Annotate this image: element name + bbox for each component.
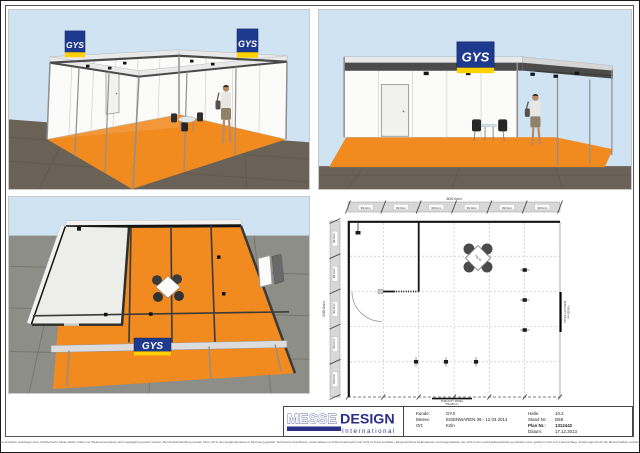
field-ort: Ort:Köln xyxy=(416,423,524,429)
svg-text:99.0cm: 99.0cm xyxy=(502,206,513,210)
svg-text:99.0cm: 99.0cm xyxy=(431,206,442,210)
fields-right: Halle:10.2 Stand Nr.:D68 Plan Nr.:131244… xyxy=(528,407,577,436)
messedesign-logo-graphic: MESSE DESIGN International xyxy=(284,407,403,437)
panel-top-view: GYS xyxy=(8,196,310,394)
gys-sign: GYS xyxy=(134,338,171,355)
svg-text:GYS: GYS xyxy=(66,40,84,50)
svg-text:99.0cm: 99.0cm xyxy=(396,206,407,210)
top-dimension-strip: 99.0cm 99.0cm 99.0cm 99.0cm 99.0cm 99.0c… xyxy=(346,201,563,214)
top-view-render: GYS xyxy=(9,197,309,393)
messedesign-logo: MESSE DESIGN International xyxy=(283,406,404,437)
title-block-fields: Kunde:GYS Messe:EISENWAREN 09.- 12.03.20… xyxy=(404,406,633,437)
booth-floor xyxy=(329,137,613,167)
svg-text:MESSE: MESSE xyxy=(287,412,337,428)
panel-front-view: GYS xyxy=(318,9,632,190)
svg-text:99.0cm: 99.0cm xyxy=(332,268,336,279)
svg-text:GYS: GYS xyxy=(238,39,257,49)
storage-spotlight xyxy=(356,223,361,235)
svg-text:99.0cm: 99.0cm xyxy=(332,233,336,244)
left-dimension-strip: 99.0cm 99.0cm 99.0cm 99.0cm 99.0cm xyxy=(330,219,341,400)
svg-text:International: International xyxy=(342,428,396,435)
front-view-render: GYS xyxy=(319,10,631,189)
svg-text:99.0cm: 99.0cm xyxy=(332,373,336,384)
gys-sign: GYS xyxy=(65,31,85,57)
svg-text:GYS: GYS xyxy=(462,50,490,65)
svg-text:H50/150 cm: H50/150 cm xyxy=(566,306,569,319)
gys-sign: GYS xyxy=(457,42,494,73)
footer: Unsere Entwürfe unterliegen dem Urheberr… xyxy=(0,440,640,444)
panel-perspective-view: GYS GYS xyxy=(8,9,310,190)
svg-text:GYS: GYS xyxy=(142,341,163,352)
publicity-panel-bottom: PUBLICITY PANEL H50/150 cm xyxy=(432,399,472,406)
floor-plan-drawing: 600.0cm 99.0cm 99.0cm 99.0cm 99.0cm 99.0… xyxy=(320,194,630,406)
field-datum: Datum:17.12.2013 xyxy=(528,429,577,435)
back-wall xyxy=(344,71,517,138)
gys-sign: GYS xyxy=(237,29,258,58)
panel-floor-plan: 600.0cm 99.0cm 99.0cm 99.0cm 99.0cm 99.0… xyxy=(320,194,630,406)
svg-text:99.0cm: 99.0cm xyxy=(332,303,336,314)
door-swing xyxy=(352,289,383,321)
storage-room xyxy=(352,222,419,322)
svg-text:99.0cm: 99.0cm xyxy=(467,206,478,210)
door xyxy=(381,85,408,137)
table-and-chairs xyxy=(152,274,184,302)
svg-text:99.0cm: 99.0cm xyxy=(332,338,336,349)
perspective-view-render: GYS GYS xyxy=(9,10,309,189)
total-width-dimension: 600.0cm xyxy=(446,196,462,201)
fields-left: Kunde:GYS Messe:EISENWAREN 09.- 12.03.20… xyxy=(416,407,524,436)
svg-text:99.0cm: 99.0cm xyxy=(537,206,548,210)
svg-text:DESIGN: DESIGN xyxy=(340,412,395,428)
right-spotlights xyxy=(520,268,530,332)
hall-floor xyxy=(319,166,631,189)
total-depth-dimension: 500.0cm xyxy=(321,301,326,317)
meeting-table: 70x70 xyxy=(464,244,493,273)
disclaimer-text: Unsere Entwürfe unterliegen dem Urheberr… xyxy=(0,440,640,444)
title-block: MESSE DESIGN International Kunde:GYS Mes… xyxy=(283,406,633,437)
publicity-panel-right: PUBLICITY PANEL H50/150 cm xyxy=(561,292,570,332)
svg-text:99.0cm: 99.0cm xyxy=(361,206,372,210)
